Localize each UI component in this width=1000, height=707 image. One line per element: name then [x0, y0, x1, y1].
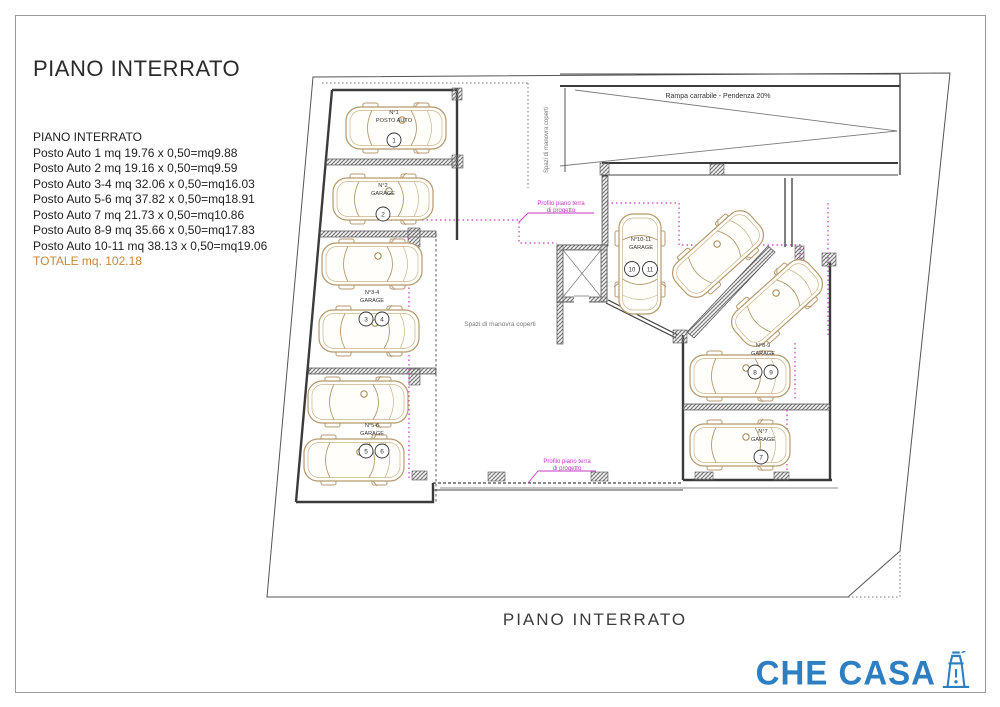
- stall-5-6-type: GARAGE: [360, 431, 384, 437]
- badge: 6: [375, 444, 389, 458]
- badge-6: 6: [380, 449, 384, 456]
- measurement-list: PIANO INTERRATO Posto Auto 1 mq 19.76 x …: [33, 130, 267, 270]
- measurement-row: Posto Auto 3-4 mq 32.06 x 0,50=mq16.03: [33, 177, 267, 193]
- stall-2-label: N°2: [378, 183, 387, 189]
- lighthouse-icon: [940, 651, 972, 689]
- profile-label-bottom-line1: Profilo piano terra: [543, 459, 591, 465]
- stall-8-9-type: GARAGE: [751, 351, 775, 357]
- stall-2-type: GARAGE: [371, 191, 395, 197]
- stall-3-4-type: GARAGE: [360, 298, 384, 304]
- badge: 8: [748, 365, 762, 379]
- profile-label-bottom: Profilo piano terra di progetto: [543, 459, 591, 472]
- badge-11: 11: [647, 268, 654, 274]
- car-5: [308, 376, 408, 428]
- stall-7-type: GARAGE: [751, 437, 775, 443]
- badge-7: 7: [759, 455, 763, 462]
- badge-10: 10: [629, 268, 636, 274]
- stall-7-label: N°7: [758, 429, 767, 435]
- badge: 7: [754, 450, 768, 464]
- stall-8-9-label: N°8-9: [756, 343, 770, 349]
- badge: 11: [643, 262, 658, 277]
- measurement-row: Posto Auto 5-6 mq 37.82 x 0,50=mq18.91: [33, 192, 267, 208]
- stall-3-4-label: N°3-4: [365, 290, 379, 296]
- badge: 10: [625, 262, 640, 277]
- badge: 4: [375, 312, 389, 326]
- profile-label-top: Profilo piano terra di progetto: [537, 201, 585, 214]
- car-3: [322, 238, 422, 290]
- car-10-11: [614, 214, 666, 314]
- maneuver-label-center: Spazi di manovra coperti: [464, 321, 536, 328]
- page-title: PIANO INTERRATO: [33, 56, 240, 82]
- pillar: [600, 163, 609, 175]
- badge-9: 9: [769, 370, 773, 377]
- measurement-total: TOTALE mq. 102.18: [33, 254, 267, 270]
- measurement-row: Posto Auto 1 mq 19.76 x 0,50=mq9.88: [33, 146, 267, 162]
- badge: 2: [376, 207, 390, 221]
- badge: 3: [359, 312, 373, 326]
- stall-1-label: N°1: [389, 110, 398, 116]
- car-maneuver-b: [722, 250, 831, 356]
- plan-caption: PIANO INTERRATO: [395, 610, 795, 630]
- ramp: Rampa carrabile - Pendenza 20%: [560, 74, 900, 175]
- measurement-row: Posto Auto 8-9 mq 35.66 x 0,50=mq17.83: [33, 223, 267, 239]
- maneuver-label-top: Spazi di manovra coperti: [544, 107, 550, 173]
- profile-label-top-line2: di progetto: [547, 208, 576, 214]
- profile-label-bottom-line2: di progetto: [553, 466, 582, 472]
- badge: 1: [387, 133, 401, 147]
- stall-10-11-type: GARAGE: [629, 245, 653, 251]
- badge-2: 2: [381, 212, 385, 219]
- badge-1: 1: [392, 138, 396, 145]
- car-7: [690, 419, 790, 471]
- measurement-heading: PIANO INTERRATO: [33, 130, 267, 146]
- agency-logo-text: CHE CASA: [756, 655, 936, 690]
- measurement-row: Posto Auto 2 mq 19.16 x 0,50=mq9.59: [33, 161, 267, 177]
- floorplan-drawing: Rampa carrabile - Pendenza 20% Spazi di …: [255, 55, 970, 610]
- car-maneuver-a: [663, 201, 772, 307]
- floorplan-page: PIANO INTERRATO PIANO INTERRATO Posto Au…: [0, 0, 1000, 707]
- stall-10-11-label: N°10-11: [631, 237, 651, 243]
- badge: 5: [359, 444, 373, 458]
- badge-5: 5: [364, 449, 368, 456]
- badge: 9: [764, 365, 778, 379]
- badge-8: 8: [753, 370, 757, 377]
- pillar: [710, 164, 724, 175]
- agency-logo: CHE CASA: [756, 651, 972, 689]
- ramp-label: Rampa carrabile - Pendenza 20%: [665, 93, 770, 100]
- car-6: [304, 434, 404, 486]
- badge-4: 4: [380, 317, 384, 324]
- measurement-row: Posto Auto 10-11 mq 38.13 x 0,50=mq19.06: [33, 239, 267, 255]
- profile-label-top-line1: Profilo piano terra: [537, 201, 585, 207]
- measurement-row: Posto Auto 7 mq 21.73 x 0,50=mq10.86: [33, 208, 267, 224]
- stall-5-6-label: N°5-6: [365, 423, 379, 429]
- elevator: [557, 245, 607, 304]
- badge-3: 3: [364, 317, 368, 324]
- stall-1-type: POSTO AUTO: [376, 118, 413, 124]
